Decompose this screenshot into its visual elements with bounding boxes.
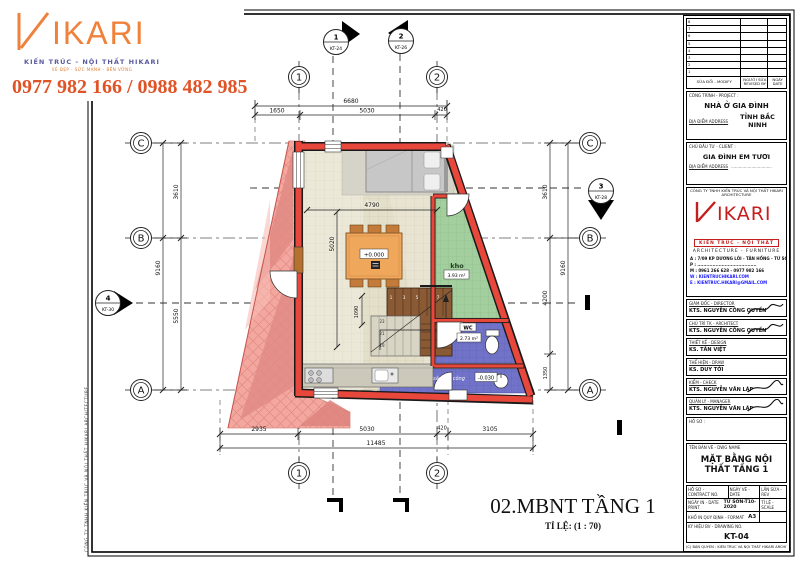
- dwg-name: MẶT BẰNG NỘI THẤT TẦNG 1: [687, 455, 786, 476]
- rev-col-revised: NGƯỜI SỬA REVISED BY: [741, 77, 768, 89]
- door-bottom-gap: [449, 390, 467, 400]
- company-box: CÔNG TY TNHH KIẾN TRÚC VÀ NỘI THẤT HIKAR…: [686, 187, 787, 297]
- brand-block: IKARI KIẾN TRÚC - NỘI THẤT HIKARI VẺ ĐẸP…: [10, 6, 244, 101]
- main-level: +0.000: [364, 252, 385, 258]
- dim-top-total: 6680: [343, 98, 358, 105]
- dim-right-1: 3610: [542, 184, 549, 199]
- dossier-box: HỒ SƠ :: [686, 417, 787, 441]
- client-box: CHỦ ĐẦU TƯ - CLIENT : GIA ĐÌNH EM TƯƠI Đ…: [686, 142, 787, 185]
- section-marker-3: 3 KT-28: [588, 179, 614, 221]
- wc-label: WC: [463, 325, 473, 331]
- company-tagline: ARCHITECTURE - FURNITURE: [687, 249, 786, 254]
- revision-table: 8 7 6 5 4 3 2 1 SỬA ĐỔI - MODIFY NGƯỜI S…: [686, 18, 787, 89]
- company-address: A : 7/09 KP DƯƠNG LÔI - TÂN HỒNG - TỪ SƠ…: [690, 256, 786, 262]
- format-label: KHỔ IN QUY ĐỊNH - FORMAT: [688, 515, 744, 520]
- project-label: CÔNG TRÌNH - PROJECT :: [687, 92, 786, 99]
- copyright: (C) BẢN QUYỀN : KIẾN TRÚC VÀ NỘI THẤT HI…: [686, 545, 787, 549]
- grid-bubble-1-top: 1: [296, 73, 302, 84]
- svg-text:19: 19: [379, 343, 385, 348]
- grid-bubble-B-left: B: [138, 234, 145, 245]
- kitchen-counter: [299, 364, 433, 387]
- dim-left-2: 5550: [173, 308, 180, 323]
- corner-gap: [441, 147, 453, 158]
- grid-bubble-C-left: C: [138, 139, 145, 150]
- dim-bottom-1: 2935: [251, 426, 266, 433]
- svg-text:3: 3: [403, 295, 406, 300]
- window-left: [293, 152, 304, 188]
- dim-right-total: 9160: [560, 260, 567, 275]
- dim-bottom-4: 3105: [482, 426, 497, 433]
- date-label: NGÀY VẼ - DATE: [729, 486, 761, 498]
- logo-text: IKARI: [52, 15, 146, 51]
- dim-bottom-3: 420: [437, 426, 447, 432]
- section-marker-4: 4 KT-30: [96, 291, 134, 316]
- signer-draw: THỂ HIỆN - DRAW KS. DUY TỚI: [686, 358, 787, 376]
- dwgno-label: KÝ HIỆU BV - DRAWING NO.: [688, 524, 785, 529]
- svg-text:2: 2: [399, 33, 404, 41]
- dwg-name-box: TÊN BẢN VẼ - DWG NAME MẶT BẰNG NỘI THẤT …: [686, 443, 787, 483]
- dim-top-1: 1650: [269, 108, 284, 115]
- svg-text:KT-28: KT-28: [595, 195, 607, 201]
- signature: [746, 321, 784, 337]
- dim-left-total: 9160: [155, 260, 162, 275]
- svg-text:3: 3: [599, 183, 604, 191]
- bed: [342, 145, 454, 195]
- svg-text:5: 5: [416, 295, 419, 300]
- caption-title: 02.MBNT TẦNG 1: [468, 494, 678, 519]
- dim-left-1: 3610: [173, 184, 180, 199]
- svg-text:21: 21: [379, 331, 385, 336]
- title-block: 8 7 6 5 4 3 2 1 SỬA ĐỔI - MODIFY NGƯỜI S…: [683, 15, 790, 552]
- dim-interior-width: 4790: [364, 202, 379, 209]
- laundry-level: -0.030: [478, 375, 494, 381]
- company-logo-sub: KIẾN TRÚC - NỘI THẤT: [694, 239, 779, 247]
- dim-right-2: 4200: [542, 290, 549, 305]
- caption-scale: TỈ LỆ: (1 : 70): [468, 521, 678, 531]
- client-name: GIA ĐÌNH EM TƯƠI: [687, 153, 786, 161]
- info-table: HỒ SƠ - CONTRACT NO. NGÀY VẼ - DATE LẦN …: [686, 485, 787, 543]
- hikari-logo: IKARI: [12, 8, 177, 54]
- svg-text:4: 4: [106, 295, 111, 303]
- laundry-label: sân gia công: [433, 375, 465, 382]
- dwgno-value: KT-04: [688, 532, 785, 541]
- signer-architect: CHỦ TRÌ TK - ARCHITECT KTS. NGUYỄN CÔNG …: [686, 319, 787, 337]
- storage-label: kho: [450, 262, 464, 270]
- wc-area: 2.73 m²: [460, 336, 478, 342]
- signer-check: KIỂM - CHECK KTS. NGUYỄN VĂN LẬP: [686, 378, 787, 396]
- print-label: NGÀY IN - DATE PRINT: [688, 500, 722, 510]
- window-top: [325, 141, 341, 152]
- company-logo: IKARI: [693, 199, 781, 225]
- project-address: TỈNH BẮC NINH: [731, 113, 784, 129]
- rev-col-modify: SỬA ĐỔI - MODIFY: [687, 77, 741, 89]
- company-name: CÔNG TY TNHH KIẾN TRÚC VÀ NỘI THẤT HIKAR…: [687, 188, 786, 199]
- scale-label: TỈ LỆ - SCALE: [760, 499, 786, 511]
- svg-text:7: 7: [437, 295, 440, 300]
- project-address-label: ĐỊA ĐIỂM ADDRESS: [689, 119, 728, 124]
- svg-text:KT-24: KT-24: [330, 46, 342, 52]
- dim-interior-height: 5020: [329, 236, 336, 251]
- dim-top-2: 5030: [359, 108, 374, 115]
- section-marker-2: 2 KT-26: [388, 20, 414, 54]
- svg-text:23: 23: [379, 319, 385, 324]
- signer-manager: QUẢN LÝ - MANAGER KTS. NGUYỄN VĂN LẬP: [686, 397, 787, 415]
- drawing-caption: 02.MBNT TẦNG 1 TỈ LỆ: (1 : 70): [468, 494, 678, 531]
- company-email: E : KIENTRUC.HIKARI@GMAIL.COM: [690, 280, 786, 286]
- rev-label: LẦN SỬA - REV: [760, 486, 786, 498]
- logo-tagline: VẺ ĐẸP - SỨC MẠNH - BỀN VỮNG: [12, 67, 172, 72]
- section-flags: [327, 500, 407, 512]
- toilet: [486, 330, 500, 354]
- svg-text:KT-30: KT-30: [102, 307, 114, 313]
- svg-text:KT-26: KT-26: [395, 45, 407, 51]
- client-address: ................................: [731, 164, 784, 169]
- dim-stair-width: 1090: [354, 306, 360, 319]
- storage-area: 3.93 m²: [447, 273, 465, 279]
- svg-text:1: 1: [334, 34, 339, 42]
- grid-bubble-2-bottom: 2: [434, 469, 440, 480]
- grid-bubble-A-left: A: [138, 386, 145, 397]
- project-box: CÔNG TRÌNH - PROJECT : NHÀ Ở GIA ĐÌNH ĐỊ…: [686, 91, 787, 139]
- window-bottom: [314, 388, 338, 398]
- dwg-name-label: TÊN BẢN VẼ - DWG NAME: [687, 444, 786, 451]
- grid-bubble-C-right: C: [587, 139, 594, 150]
- dim-bottom-2: 5030: [359, 426, 374, 433]
- section-marker-1: 1 KT-24: [324, 21, 361, 55]
- grid-bubble-A-right: A: [587, 386, 594, 397]
- signature: [746, 380, 784, 396]
- print-value: TỪ SƠN-T10-2020: [724, 500, 759, 510]
- project-name: NHÀ Ở GIA ĐÌNH: [687, 102, 786, 110]
- signer-design: THIẾT KẾ - DESIGN KS. TẤN VIỆT: [686, 338, 787, 356]
- dim-top-3: 420: [437, 107, 447, 113]
- section-flag-mid: [585, 295, 590, 310]
- phone-numbers: 0977 982 166 / 0988 482 985: [12, 76, 242, 99]
- svg-text:1: 1: [390, 295, 393, 300]
- client-label: CHỦ ĐẦU TƯ - CLIENT :: [687, 143, 786, 150]
- svg-text:IKARI: IKARI: [717, 203, 772, 225]
- grid-bubble-B-right: B: [587, 234, 594, 245]
- dim-bottom-total: 11485: [366, 440, 385, 447]
- grid-bubble-2-top: 2: [434, 73, 440, 84]
- frame-side-text: CÔNG TY TNHH KIẾN TRÚC VÀ NỘI THẤT HIKAR…: [84, 386, 89, 552]
- signer-director: GIÁM ĐỐC - DIRECTOR KTS. NGUYỄN CÔNG QUY…: [686, 299, 787, 317]
- dossier-label: HỒ SƠ :: [687, 418, 786, 425]
- signature: [746, 399, 784, 415]
- rev-col-date: NGÀY DATE: [768, 77, 786, 89]
- contract-label: HỒ SƠ - CONTRACT NO.: [687, 486, 729, 498]
- dim-right-3: 1350: [543, 367, 549, 380]
- signature: [746, 301, 784, 317]
- format-value: A3: [748, 514, 756, 520]
- section-flag-right: [617, 420, 622, 435]
- grid-bubble-1-bottom: 1: [296, 469, 302, 480]
- drawing-sheet: 6680 1650 5030 420 2935 5030 420 3105 11…: [0, 0, 800, 567]
- logo-subtitle: KIẾN TRÚC - NỘI THẤT HIKARI: [12, 58, 172, 66]
- client-address-label: ĐỊA ĐIỂM ADDRESS: [689, 164, 728, 169]
- door-left-leaf: [294, 247, 303, 273]
